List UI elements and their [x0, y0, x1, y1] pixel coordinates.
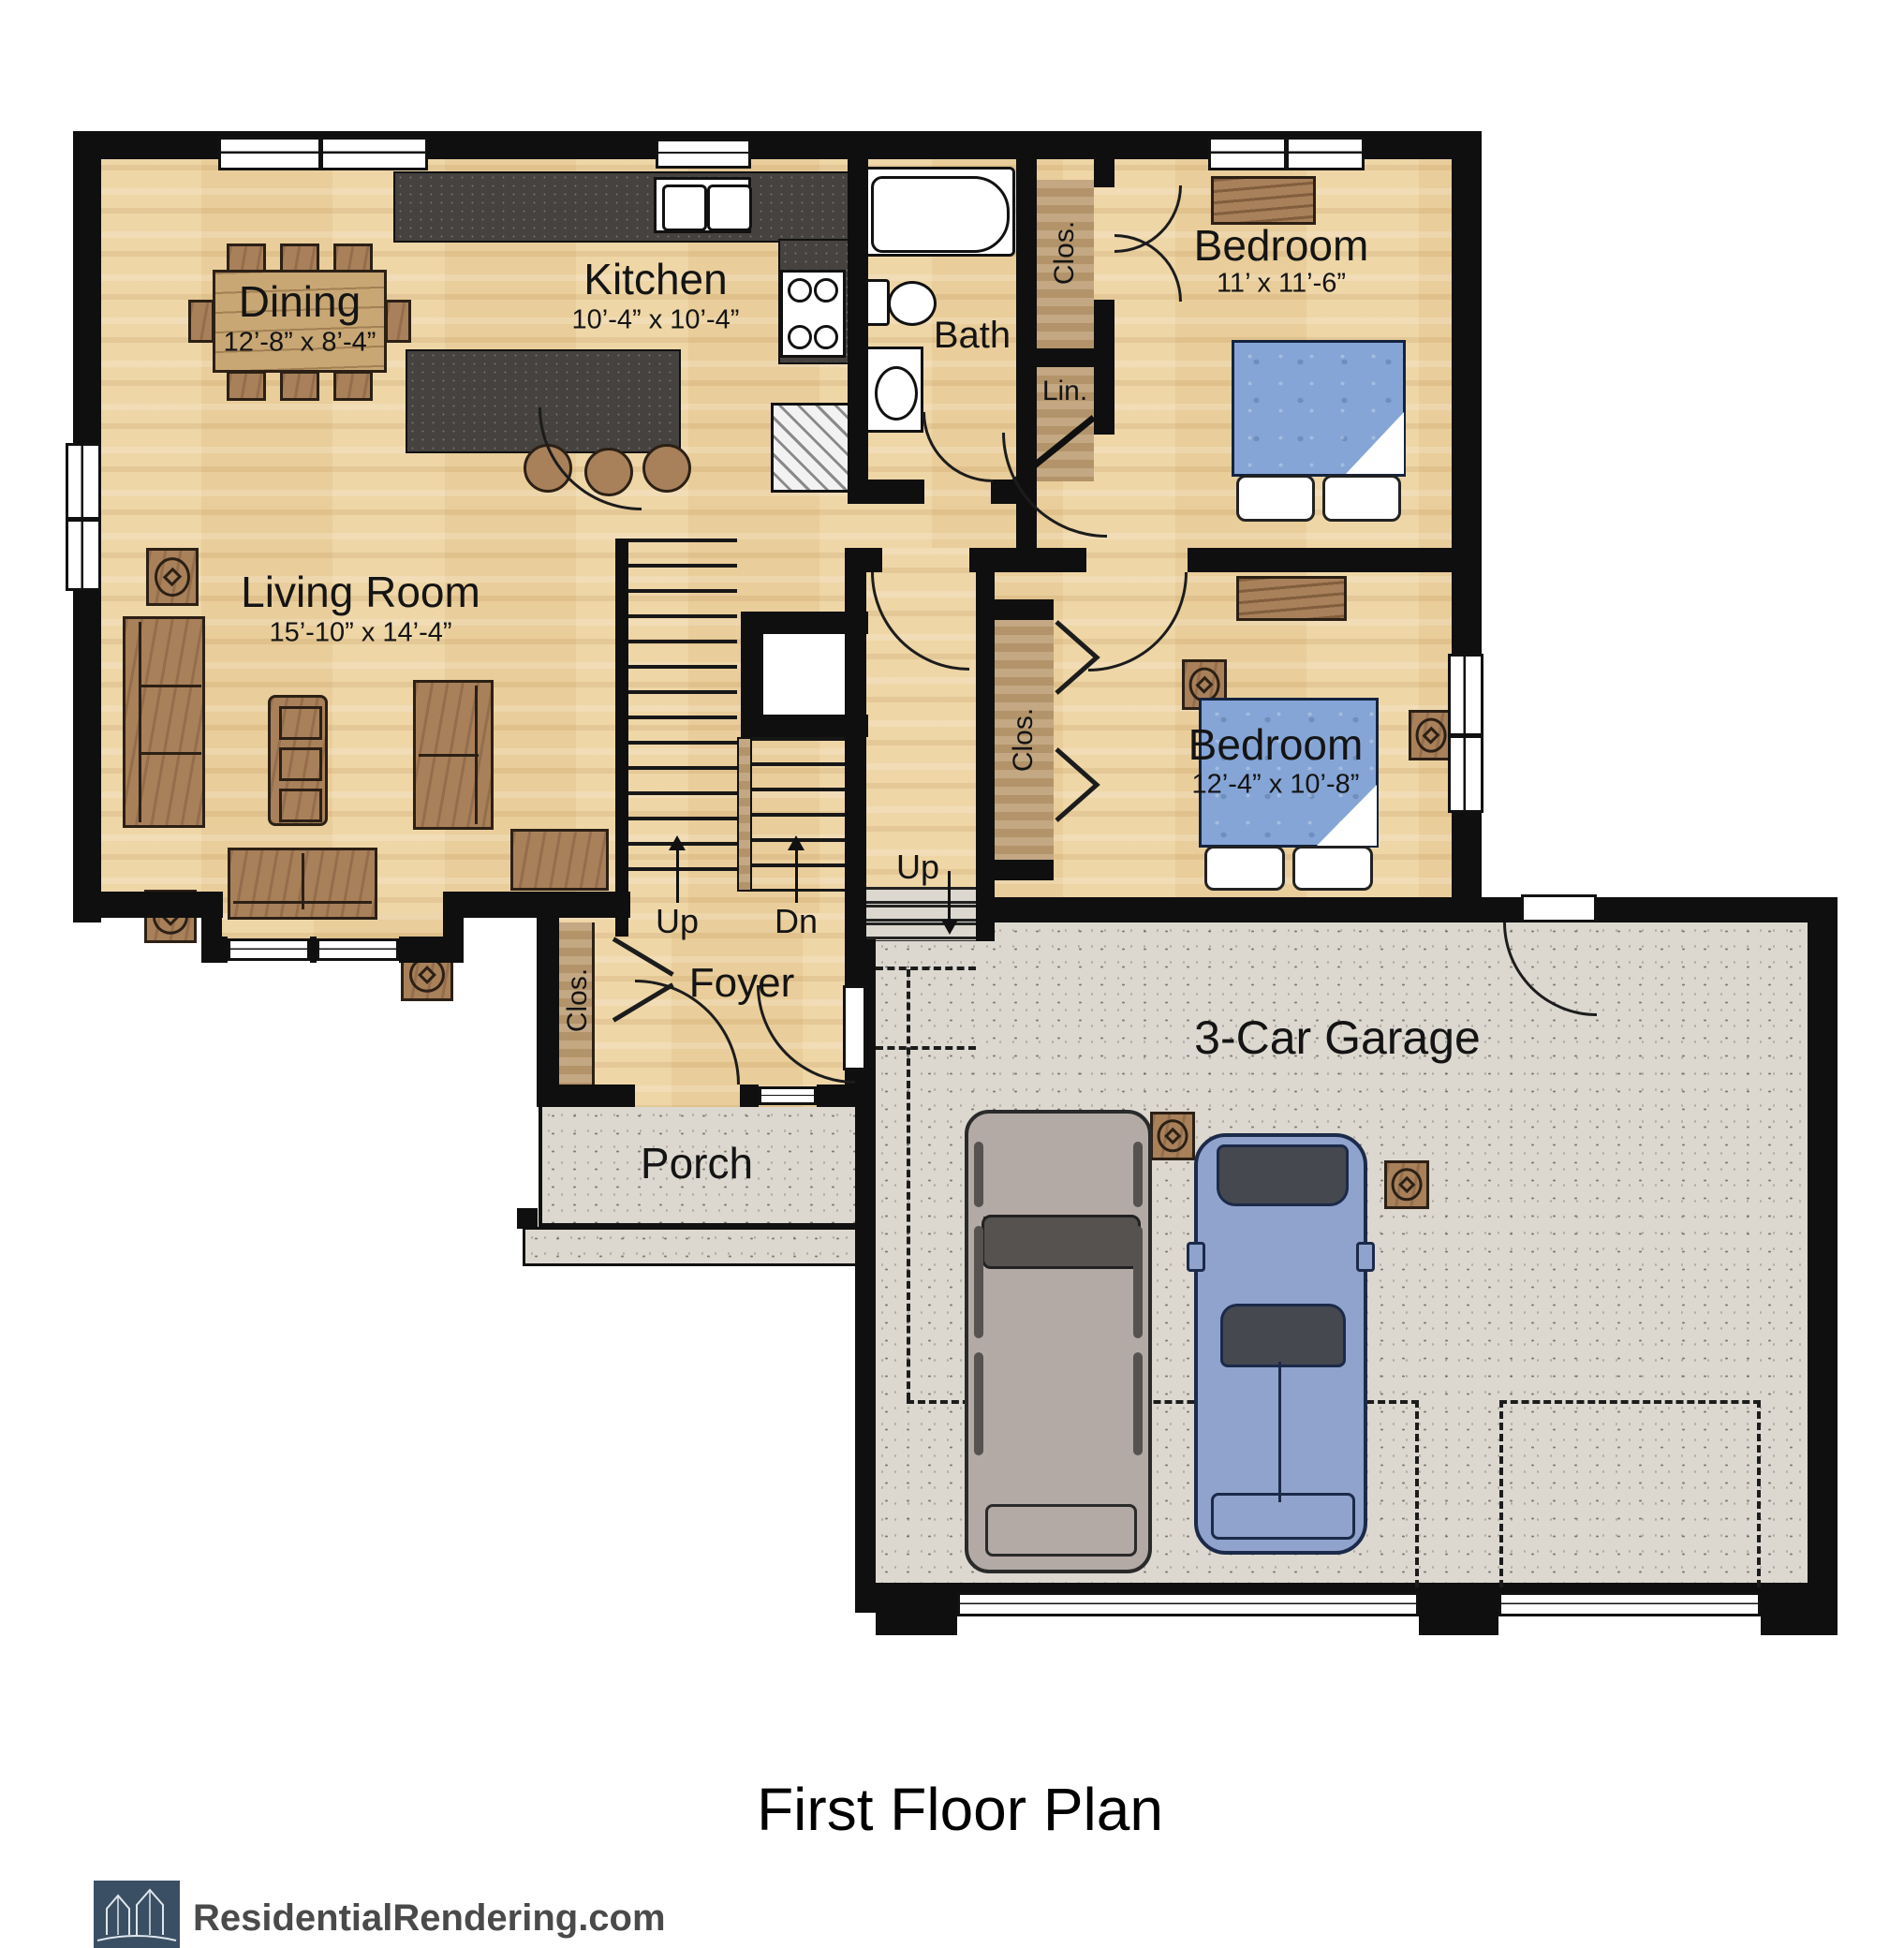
- pillow: [1292, 846, 1373, 891]
- loveseat: [413, 680, 494, 830]
- dining-chair: [280, 371, 319, 401]
- dresser: [1211, 176, 1316, 225]
- bedroom1-label: Bedroom: [1194, 224, 1369, 267]
- pillow: [1236, 475, 1315, 522]
- wall-foyer-front: [537, 1085, 635, 1107]
- garage-door-post: [1419, 1592, 1498, 1635]
- living-dims: 15’-10” x 14’-4”: [269, 620, 451, 647]
- bedroom1-window: [1208, 137, 1365, 170]
- sofa: [123, 616, 205, 828]
- dining-label: Dining: [239, 280, 361, 323]
- landing-wall: [741, 612, 763, 737]
- stairs-up-arrowhead: [669, 835, 686, 850]
- truck: [965, 1110, 1152, 1573]
- wall-foyer-left: [537, 918, 559, 1107]
- garage-door-single: [1498, 1592, 1761, 1616]
- wall-hall-south: [1188, 548, 1482, 572]
- dining-chair: [188, 300, 214, 343]
- wall-foyer-east: [845, 548, 866, 985]
- bath-label: Bath: [934, 317, 1011, 354]
- logo: [94, 1881, 180, 1948]
- garage-bay-line: [1499, 1400, 1761, 1404]
- wall-hall-south: [866, 548, 882, 572]
- bedroom2-window: [1448, 654, 1483, 813]
- porch-label: Porch: [641, 1142, 753, 1185]
- watermark: ResidentialRendering.com: [193, 1897, 666, 1940]
- wall-closet1-right: [1094, 159, 1114, 187]
- stairs-down-label: Dn: [775, 905, 818, 938]
- garage-bay-line: [876, 967, 976, 970]
- dining-chair: [227, 371, 266, 401]
- stair-divider: [737, 737, 752, 892]
- foyer-sidelight-window: [759, 1086, 817, 1105]
- garage-door-post: [876, 1592, 957, 1635]
- stairs-up-arrow: [676, 849, 679, 903]
- wall-closet1-right: [1094, 300, 1114, 435]
- car: [1194, 1133, 1367, 1555]
- garage-hall-door-leaf: [843, 985, 866, 1070]
- porch-step: [523, 1227, 871, 1266]
- kitchen-window: [656, 139, 751, 169]
- wall-garage-right: [1808, 897, 1838, 1613]
- garage-bay-line: [876, 1046, 976, 1050]
- wall-garage-top: [976, 897, 1521, 922]
- bay-window: [228, 938, 310, 961]
- wall-bay-bottom: [201, 937, 228, 963]
- wall-bath-left: [848, 159, 868, 487]
- bedroom2-label: Bedroom: [1188, 723, 1364, 766]
- wall-bath-bottom: [848, 480, 924, 504]
- garage-bay-line: [1499, 1400, 1503, 1587]
- dishwasher: [771, 403, 853, 493]
- stair-landing: [763, 634, 846, 715]
- kitchen-counter: [393, 171, 851, 243]
- garage-bay-line: [1757, 1400, 1761, 1587]
- wall-south-living: [443, 892, 630, 918]
- nightstand: [1150, 1112, 1195, 1160]
- garage-label: 3-Car Garage: [1194, 1014, 1481, 1061]
- console-table: [510, 829, 609, 891]
- stairs-down-flight: [752, 737, 845, 892]
- stairs-down-arrowhead: [788, 835, 804, 850]
- floor-plan-page: Dining 12’-8” x 8’-4” Kitchen 10’-4” x 1…: [0, 0, 1904, 1948]
- dining-window: [218, 137, 428, 170]
- closet2-label: Clos.: [1010, 708, 1038, 772]
- stove: [780, 270, 846, 358]
- wall-foyer-front: [817, 1085, 857, 1107]
- kitchen-label: Kitchen: [583, 258, 727, 301]
- wall-hall-south: [969, 548, 1086, 572]
- garage-bay-line: [907, 969, 910, 1400]
- wall-linen-top: [1016, 348, 1114, 367]
- living-window: [66, 443, 101, 591]
- stairs-down-arrow: [795, 849, 798, 903]
- couch: [228, 848, 377, 920]
- dining-chair: [333, 371, 373, 401]
- bay-window: [317, 938, 399, 961]
- nightstand: [1409, 710, 1454, 760]
- kitchen-dims: 10’-4” x 10’-4”: [572, 307, 740, 334]
- garage-up-label: Up: [896, 850, 939, 884]
- nightstand: [1384, 1160, 1429, 1209]
- toilet-bowl: [888, 281, 937, 326]
- garage-door-post: [1761, 1592, 1838, 1635]
- wall-garage-top: [1597, 897, 1838, 922]
- bath-vanity: [862, 347, 923, 433]
- page-title: First Floor Plan: [757, 1779, 1163, 1839]
- garage-entry-steps: [866, 887, 976, 941]
- kitchen-sink: [654, 177, 751, 233]
- bedroom1-dims: 11’ x 11’-6”: [1217, 271, 1346, 298]
- island-stool: [642, 444, 691, 493]
- garage-door-double: [957, 1592, 1419, 1616]
- coffee-table: [268, 695, 328, 826]
- bed-fold: [1346, 412, 1404, 474]
- wall-foyer-front: [740, 1085, 759, 1107]
- pillow: [1322, 475, 1401, 522]
- foyer-label: Foyer: [689, 963, 794, 1004]
- dining-chair: [385, 300, 411, 343]
- wall-closet2-top: [995, 599, 1054, 620]
- stairs-up-label: Up: [656, 905, 699, 938]
- garage-exterior-door-leaf: [1521, 894, 1597, 922]
- garage-up-arrowhead: [941, 920, 958, 935]
- dresser: [1236, 576, 1347, 621]
- wall-closet2-bottom: [995, 860, 1054, 880]
- wall-bedroom2-west: [976, 572, 995, 897]
- end-table: [146, 548, 199, 606]
- living-label: Living Room: [241, 570, 480, 613]
- garage-up-arrow: [948, 871, 951, 920]
- closet1-label: Clos.: [1051, 221, 1079, 285]
- bathtub: [860, 167, 1015, 257]
- pillow: [1204, 846, 1285, 891]
- wall-bay-bottom: [310, 937, 317, 963]
- garage-bay-line: [1415, 1400, 1419, 1587]
- stair-rail: [615, 539, 628, 937]
- foyer-closet-label: Clos.: [564, 968, 592, 1032]
- dining-dims: 12’-8” x 8’-4”: [224, 330, 376, 357]
- linen-label: Lin.: [1042, 377, 1087, 406]
- bedroom2-dims: 12’-4” x 10’-8”: [1192, 772, 1360, 799]
- wall-south-living: [73, 892, 223, 918]
- closet2-bifold-doors: [1054, 618, 1100, 862]
- porch-step-post: [517, 1208, 538, 1229]
